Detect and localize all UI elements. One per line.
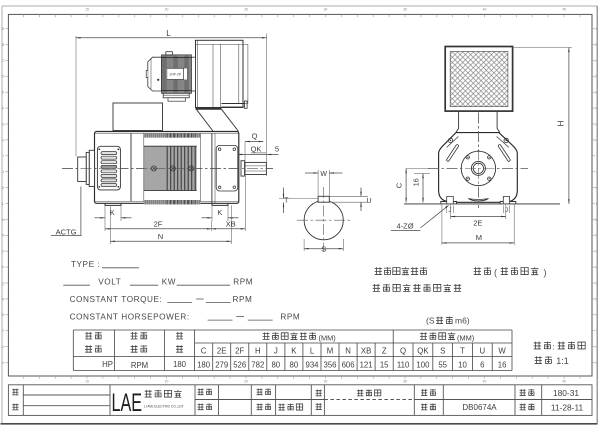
- svg-text:180-31: 180-31: [553, 388, 579, 398]
- svg-text:782: 782: [251, 360, 264, 369]
- svg-text:80: 80: [271, 360, 280, 369]
- svg-text:L: L: [596, 202, 598, 206]
- svg-text:J: J: [274, 346, 278, 355]
- svg-text:(S: (S: [426, 315, 435, 325]
- svg-text:Q: Q: [2, 281, 5, 285]
- svg-text:XB: XB: [226, 219, 236, 228]
- svg-text:30: 30: [324, 8, 328, 12]
- svg-text:40: 40: [483, 8, 487, 12]
- svg-text:I: I: [3, 154, 4, 158]
- svg-text:H: H: [2, 138, 5, 142]
- svg-text:M: M: [476, 233, 482, 242]
- svg-text:L: L: [310, 346, 315, 355]
- svg-text:CONSTANT: CONSTANT: [70, 295, 119, 304]
- svg-text:J: J: [2, 170, 4, 174]
- svg-text:16: 16: [498, 360, 507, 369]
- svg-text:RPM: RPM: [233, 295, 253, 304]
- svg-text:6: 6: [480, 360, 484, 369]
- svg-text:R: R: [2, 297, 5, 301]
- svg-text:45: 45: [562, 8, 566, 12]
- svg-text:XB: XB: [361, 346, 371, 355]
- svg-text:C: C: [595, 59, 598, 63]
- svg-text:45: 45: [562, 380, 566, 384]
- svg-text:H: H: [255, 346, 261, 355]
- svg-text:35: 35: [403, 380, 407, 384]
- svg-text:ACTG: ACTG: [56, 227, 77, 236]
- svg-text:J: J: [449, 208, 452, 214]
- svg-text:N: N: [345, 346, 351, 355]
- svg-text:Z: Z: [382, 346, 387, 355]
- svg-text:U: U: [479, 346, 485, 355]
- svg-text:K: K: [110, 210, 115, 217]
- svg-text:C: C: [2, 59, 5, 63]
- svg-text:RPM: RPM: [131, 361, 148, 370]
- svg-text:U: U: [595, 345, 598, 349]
- svg-text:(: (: [494, 267, 497, 277]
- svg-text:16: 16: [414, 178, 421, 186]
- svg-text:4-ZØ: 4-ZØ: [396, 221, 413, 230]
- svg-text:G: G: [595, 122, 598, 126]
- svg-text:): ): [544, 267, 547, 277]
- svg-text:D: D: [2, 75, 5, 79]
- svg-text:15: 15: [380, 360, 389, 369]
- svg-text:Q: Q: [595, 281, 598, 285]
- svg-text:40: 40: [483, 380, 487, 384]
- svg-text:W: W: [498, 346, 506, 355]
- svg-text:Q: Q: [252, 132, 258, 141]
- svg-text:QK: QK: [251, 145, 262, 154]
- svg-text:121: 121: [360, 360, 373, 369]
- svg-text:S: S: [440, 346, 445, 355]
- svg-text:H: H: [595, 138, 598, 142]
- svg-text:TYPE :: TYPE :: [71, 260, 100, 269]
- svg-text:11-28-11: 11-28-11: [551, 402, 584, 412]
- svg-text:T: T: [284, 198, 289, 205]
- svg-text:J: J: [596, 170, 598, 174]
- svg-text:O: O: [2, 250, 5, 254]
- svg-text:R: R: [595, 297, 598, 301]
- svg-text:M: M: [595, 218, 598, 222]
- svg-text:m6): m6): [455, 315, 470, 325]
- svg-text:HORSEPOWER:: HORSEPOWER:: [121, 312, 189, 321]
- svg-text:2F: 2F: [154, 219, 163, 228]
- svg-text:M: M: [2, 218, 5, 222]
- svg-text:606: 606: [342, 360, 355, 369]
- svg-text:L: L: [2, 202, 4, 206]
- svg-text:I: I: [596, 154, 597, 158]
- svg-text:15: 15: [85, 380, 89, 384]
- svg-text:C: C: [201, 346, 207, 355]
- svg-text:526: 526: [233, 360, 246, 369]
- svg-text:(MM): (MM): [319, 333, 336, 342]
- svg-text:180: 180: [173, 360, 187, 369]
- svg-text:5: 5: [275, 144, 279, 153]
- svg-text:L: L: [166, 29, 171, 38]
- svg-text:DB0674A: DB0674A: [462, 403, 497, 412]
- svg-text:N: N: [2, 234, 5, 238]
- svg-text:G: G: [2, 122, 5, 126]
- svg-text:K: K: [291, 346, 297, 355]
- svg-text:20: 20: [165, 8, 169, 12]
- svg-text:H: H: [557, 120, 566, 126]
- svg-text:25: 25: [244, 8, 248, 12]
- svg-text:10: 10: [458, 360, 467, 369]
- svg-text:QK: QK: [417, 346, 429, 355]
- svg-text:55: 55: [438, 360, 447, 369]
- svg-text:20: 20: [165, 380, 169, 384]
- svg-text:RPM: RPM: [233, 278, 253, 287]
- svg-text:T: T: [460, 346, 465, 355]
- svg-text:(MM): (MM): [457, 333, 474, 342]
- svg-text:U: U: [367, 198, 372, 205]
- svg-text:100: 100: [416, 360, 430, 369]
- svg-text:K: K: [217, 210, 222, 217]
- svg-text:1:1: 1:1: [556, 356, 569, 366]
- svg-text:TORQUE:: TORQUE:: [121, 295, 162, 304]
- svg-text:25: 25: [244, 380, 248, 384]
- svg-text:2E: 2E: [473, 218, 482, 227]
- svg-text:80: 80: [290, 360, 299, 369]
- svg-text:356: 356: [323, 360, 336, 369]
- svg-text:O: O: [595, 250, 598, 254]
- svg-text:35: 35: [403, 8, 407, 12]
- svg-text:C: C: [395, 182, 404, 188]
- svg-text:110: 110: [397, 360, 410, 369]
- svg-text:1HP-2P: 1HP-2P: [169, 73, 182, 77]
- svg-text:279: 279: [215, 360, 228, 369]
- svg-text:LI AVE ELECTRIC CO.,LDT: LI AVE ELECTRIC CO.,LDT: [144, 404, 184, 408]
- svg-text:934: 934: [305, 360, 319, 369]
- svg-text:J: J: [505, 208, 508, 214]
- svg-text:S: S: [321, 245, 326, 254]
- svg-text:CONSTANT: CONSTANT: [70, 312, 119, 321]
- svg-text:N: N: [595, 234, 598, 238]
- svg-text:HP: HP: [102, 360, 113, 369]
- svg-text:2E: 2E: [217, 346, 227, 355]
- svg-text:2F: 2F: [235, 346, 244, 355]
- svg-text:W: W: [320, 171, 327, 178]
- svg-text:U: U: [2, 345, 5, 349]
- svg-text:KW: KW: [162, 278, 176, 287]
- svg-text:LAE: LAE: [112, 389, 143, 417]
- svg-text::: :: [552, 343, 554, 352]
- svg-text:VOLT: VOLT: [98, 278, 121, 287]
- svg-text:D: D: [595, 75, 598, 79]
- svg-text:M: M: [327, 346, 334, 355]
- svg-text:N: N: [158, 232, 163, 241]
- svg-text:RPM: RPM: [280, 312, 300, 321]
- svg-text:Q: Q: [400, 346, 406, 355]
- svg-text:15: 15: [85, 8, 89, 12]
- svg-text:30: 30: [324, 380, 328, 384]
- svg-text:180: 180: [197, 360, 211, 369]
